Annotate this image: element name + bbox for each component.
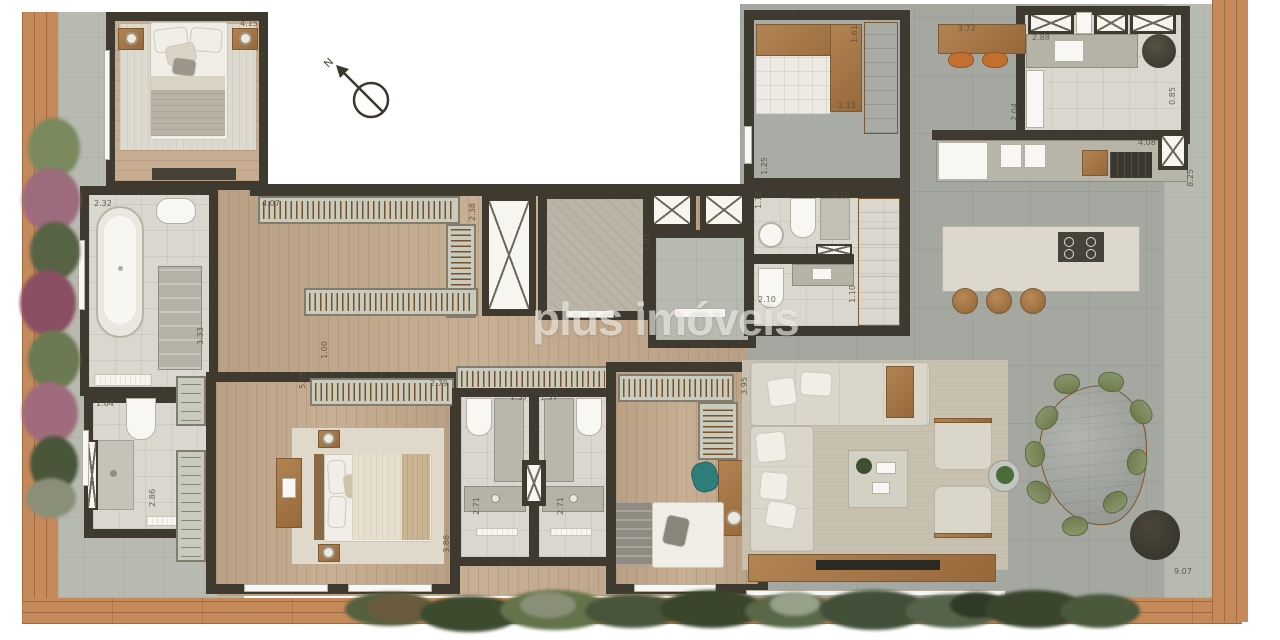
dimension-label: 1.25 bbox=[761, 157, 769, 175]
dimension-label: 4.07 bbox=[262, 200, 280, 208]
dimension-label: 9.07 bbox=[1174, 568, 1192, 576]
dimension-label: 2.71 bbox=[473, 497, 481, 515]
dimension-label: 2.04 bbox=[1011, 103, 1019, 121]
dimension-label: 3.33 bbox=[197, 327, 205, 345]
dimension-label: 3.86 bbox=[443, 535, 451, 553]
dimension-label: 2.86 bbox=[149, 489, 157, 507]
dimension-label: 2.79 bbox=[430, 380, 448, 388]
dimension-label: 0.85 bbox=[1169, 87, 1177, 105]
dimension-label: 1.00 bbox=[321, 341, 329, 359]
dimension-label: 1.81 bbox=[643, 233, 651, 251]
dimension-label: 2.10 bbox=[832, 192, 850, 200]
dimension-label: 1.37 bbox=[510, 394, 528, 402]
dimension-label: 1.12 bbox=[755, 191, 763, 209]
dimension-label: 2.38 bbox=[469, 203, 477, 221]
dimension-label: 3.72 bbox=[958, 25, 976, 33]
dimension-label: 3.95 bbox=[741, 377, 749, 395]
dimension-label: 2.71 bbox=[557, 497, 565, 515]
dimension-label: 2.13 bbox=[838, 102, 856, 110]
dimension-label: 4.08 bbox=[1138, 139, 1156, 147]
dimension-label: 1.64 bbox=[96, 400, 114, 408]
dimension-label: 4.15 bbox=[240, 20, 258, 28]
floor-plan: N 4.152.323.331.642.864.072.381.005.952.… bbox=[0, 0, 1280, 640]
dimension-label: 2.32 bbox=[94, 200, 112, 208]
dimension-label: 8.25 bbox=[1187, 169, 1195, 187]
dimension-label: 1.61 bbox=[851, 25, 859, 43]
dimension-label: 1.10 bbox=[849, 285, 857, 303]
dimension-label: 1.37 bbox=[540, 394, 558, 402]
watermark: plus imóveis bbox=[532, 292, 799, 346]
dimension-label: 2.88 bbox=[1032, 34, 1050, 42]
dimension-label: 5.95 bbox=[299, 371, 307, 389]
